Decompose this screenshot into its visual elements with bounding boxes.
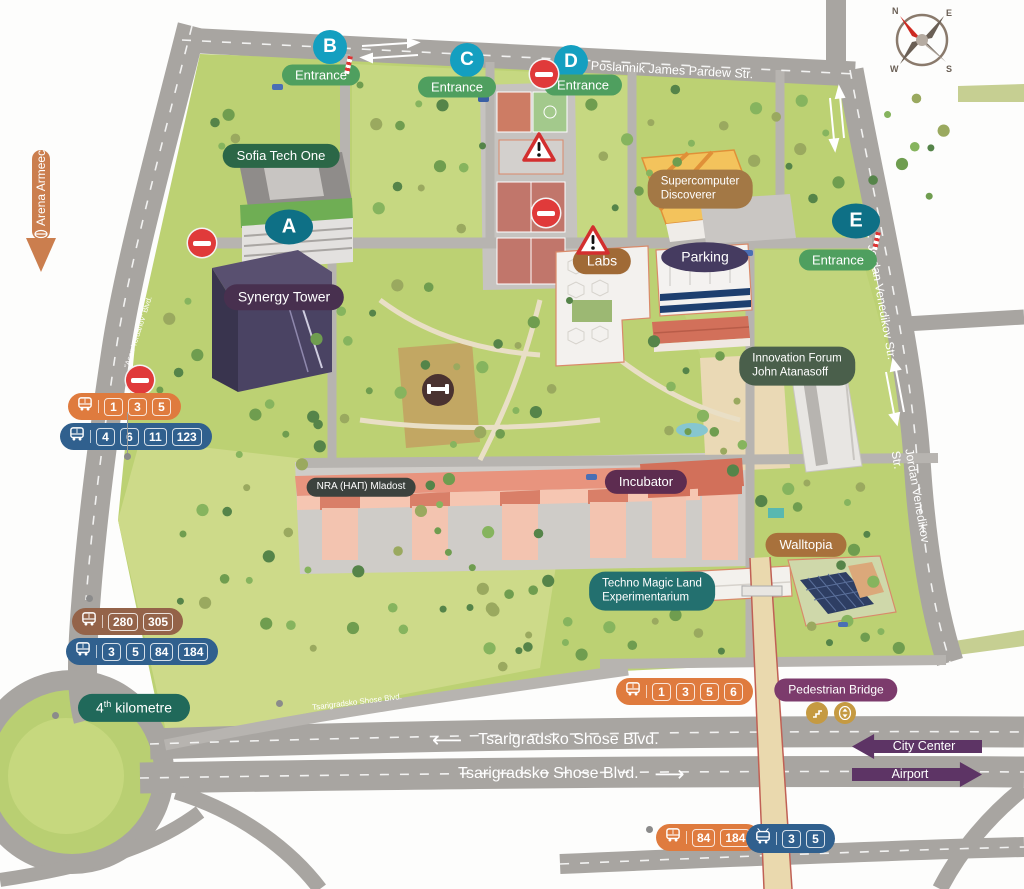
bus-route: 184 xyxy=(178,643,208,661)
building-red-block xyxy=(652,316,750,352)
bus-stop-south-orange: 1 3 5 6 xyxy=(616,678,753,705)
bus-stop-bridge-blue-trolley: 3 5 xyxy=(746,824,835,853)
bus-route: 280 xyxy=(108,613,138,631)
bus-route: 3 xyxy=(128,398,147,416)
bus-route: 6 xyxy=(724,683,743,701)
no-entry-sign xyxy=(530,60,558,88)
compass-n: N xyxy=(892,6,899,16)
stop-dot xyxy=(52,712,59,719)
bus-route: 5 xyxy=(700,683,719,701)
arena-armeec-label: Arena Armeec xyxy=(34,150,48,226)
bus-route: 3 xyxy=(676,683,695,701)
bus-route: 3 xyxy=(782,830,801,848)
bus-stop-southwest-blue: 3 5 84 184 xyxy=(66,638,218,665)
bus-route: 123 xyxy=(172,428,202,446)
compass-rose: N E W S xyxy=(880,2,964,76)
stop-dot xyxy=(86,595,93,602)
compass-w: W xyxy=(890,64,899,74)
bus-route: 5 xyxy=(152,398,171,416)
bus-stop-southwest-brown: 280 305 xyxy=(72,608,183,635)
warning-sign xyxy=(576,225,610,255)
bus-route: 84 xyxy=(692,829,715,847)
supercomputer-line1: Supercomputer xyxy=(661,175,740,189)
bus-icon xyxy=(77,397,93,416)
bus-route: 6 xyxy=(120,428,139,446)
blvd-west-label: Tsarigradsko Shose Blvd. xyxy=(478,731,659,749)
blvd-east-row: Tsarigradsko Shose Blvd. ⟶ xyxy=(458,765,685,783)
fourth-km-text: kilometre xyxy=(111,700,172,716)
bus-stop-west-orange: 1 3 5 xyxy=(68,393,181,420)
bus-route: 305 xyxy=(143,613,173,631)
bus-route: 5 xyxy=(126,643,145,661)
entrance-e-marker: E xyxy=(832,204,880,239)
badge-nra: NRA (НАП) Mladost xyxy=(307,478,416,497)
stop-dot xyxy=(276,700,283,707)
leader-line xyxy=(127,412,128,456)
entrance-b-marker: B xyxy=(313,30,347,64)
compass-e: E xyxy=(946,8,952,18)
elevator-icon xyxy=(834,702,856,724)
badge-pedestrian-bridge: Pedestrian Bridge xyxy=(774,679,897,702)
blvd-east-label: Tsarigradsko Shose Blvd. xyxy=(458,765,639,783)
techno-line1: Techno Magic Land xyxy=(602,577,702,591)
bus-route: 5 xyxy=(806,830,825,848)
badge-parking: Parking xyxy=(661,242,748,272)
campus-map: N E W S Arena Armeec Poslannik James Par… xyxy=(0,0,1024,889)
badge-fourth-kilometre: 4th kilometre xyxy=(78,694,190,722)
entrance-c-label: Entrance xyxy=(418,77,496,98)
innovation-forum-line1: Innovation Forum xyxy=(752,352,842,366)
trolleybus-icon xyxy=(755,828,771,849)
bus-route: 1 xyxy=(104,398,123,416)
badge-innovation-forum: Innovation Forum John Atanasoff xyxy=(739,347,855,386)
escalator-icon xyxy=(806,702,828,724)
fitness-spot xyxy=(422,374,454,406)
no-entry-sign xyxy=(126,366,154,394)
arrow-east-icon: ⟶ xyxy=(655,769,685,779)
entrance-c-marker: C xyxy=(450,43,484,77)
no-entry-sign xyxy=(532,199,560,227)
bus-route: 11 xyxy=(144,428,167,446)
badge-techno-magic-land: Techno Magic Land Experimentarium xyxy=(589,572,715,611)
arrow-west-icon: ⟵ xyxy=(432,735,462,745)
bus-icon xyxy=(665,828,681,847)
arena-armeec-arrow: Arena Armeec xyxy=(22,148,60,276)
badge-walltopia: Walltopia xyxy=(766,533,847,557)
compass-s: S xyxy=(946,64,952,74)
fourth-km-number: 4 xyxy=(96,700,104,716)
stop-dot xyxy=(646,826,653,833)
bus-icon xyxy=(625,682,641,701)
badge-incubator: Incubator xyxy=(605,470,687,494)
building-synergy-tower xyxy=(212,250,332,392)
no-entry-sign xyxy=(188,229,216,257)
badge-supercomputer: Supercomputer Discoverer xyxy=(648,170,753,209)
bus-stop-bridge-orange: 84 184 xyxy=(656,824,760,851)
entrance-a-marker: A xyxy=(265,210,313,245)
badge-synergy-tower: Synergy Tower xyxy=(224,284,344,310)
warning-sign xyxy=(522,132,556,162)
supercomputer-line2: Discoverer xyxy=(661,189,740,203)
entrance-e-label: Entrance xyxy=(799,250,877,271)
innovation-forum-line2: John Atanasoff xyxy=(752,366,842,380)
stop-dot xyxy=(124,453,131,460)
bus-icon xyxy=(69,427,85,446)
bus-route: 4 xyxy=(96,428,115,446)
bus-route: 1 xyxy=(652,683,671,701)
bus-route: 3 xyxy=(102,643,121,661)
bus-icon xyxy=(75,642,91,661)
bus-stop-west-blue: 4 6 11 123 xyxy=(60,423,212,450)
badge-sofia-tech-one: Sofia Tech One xyxy=(223,144,340,168)
techno-line2: Experimentarium xyxy=(602,591,702,605)
bus-route: 84 xyxy=(150,643,173,661)
bus-icon xyxy=(81,612,97,631)
blvd-west-row: ⟵ Tsarigradsko Shose Blvd. xyxy=(432,731,659,749)
